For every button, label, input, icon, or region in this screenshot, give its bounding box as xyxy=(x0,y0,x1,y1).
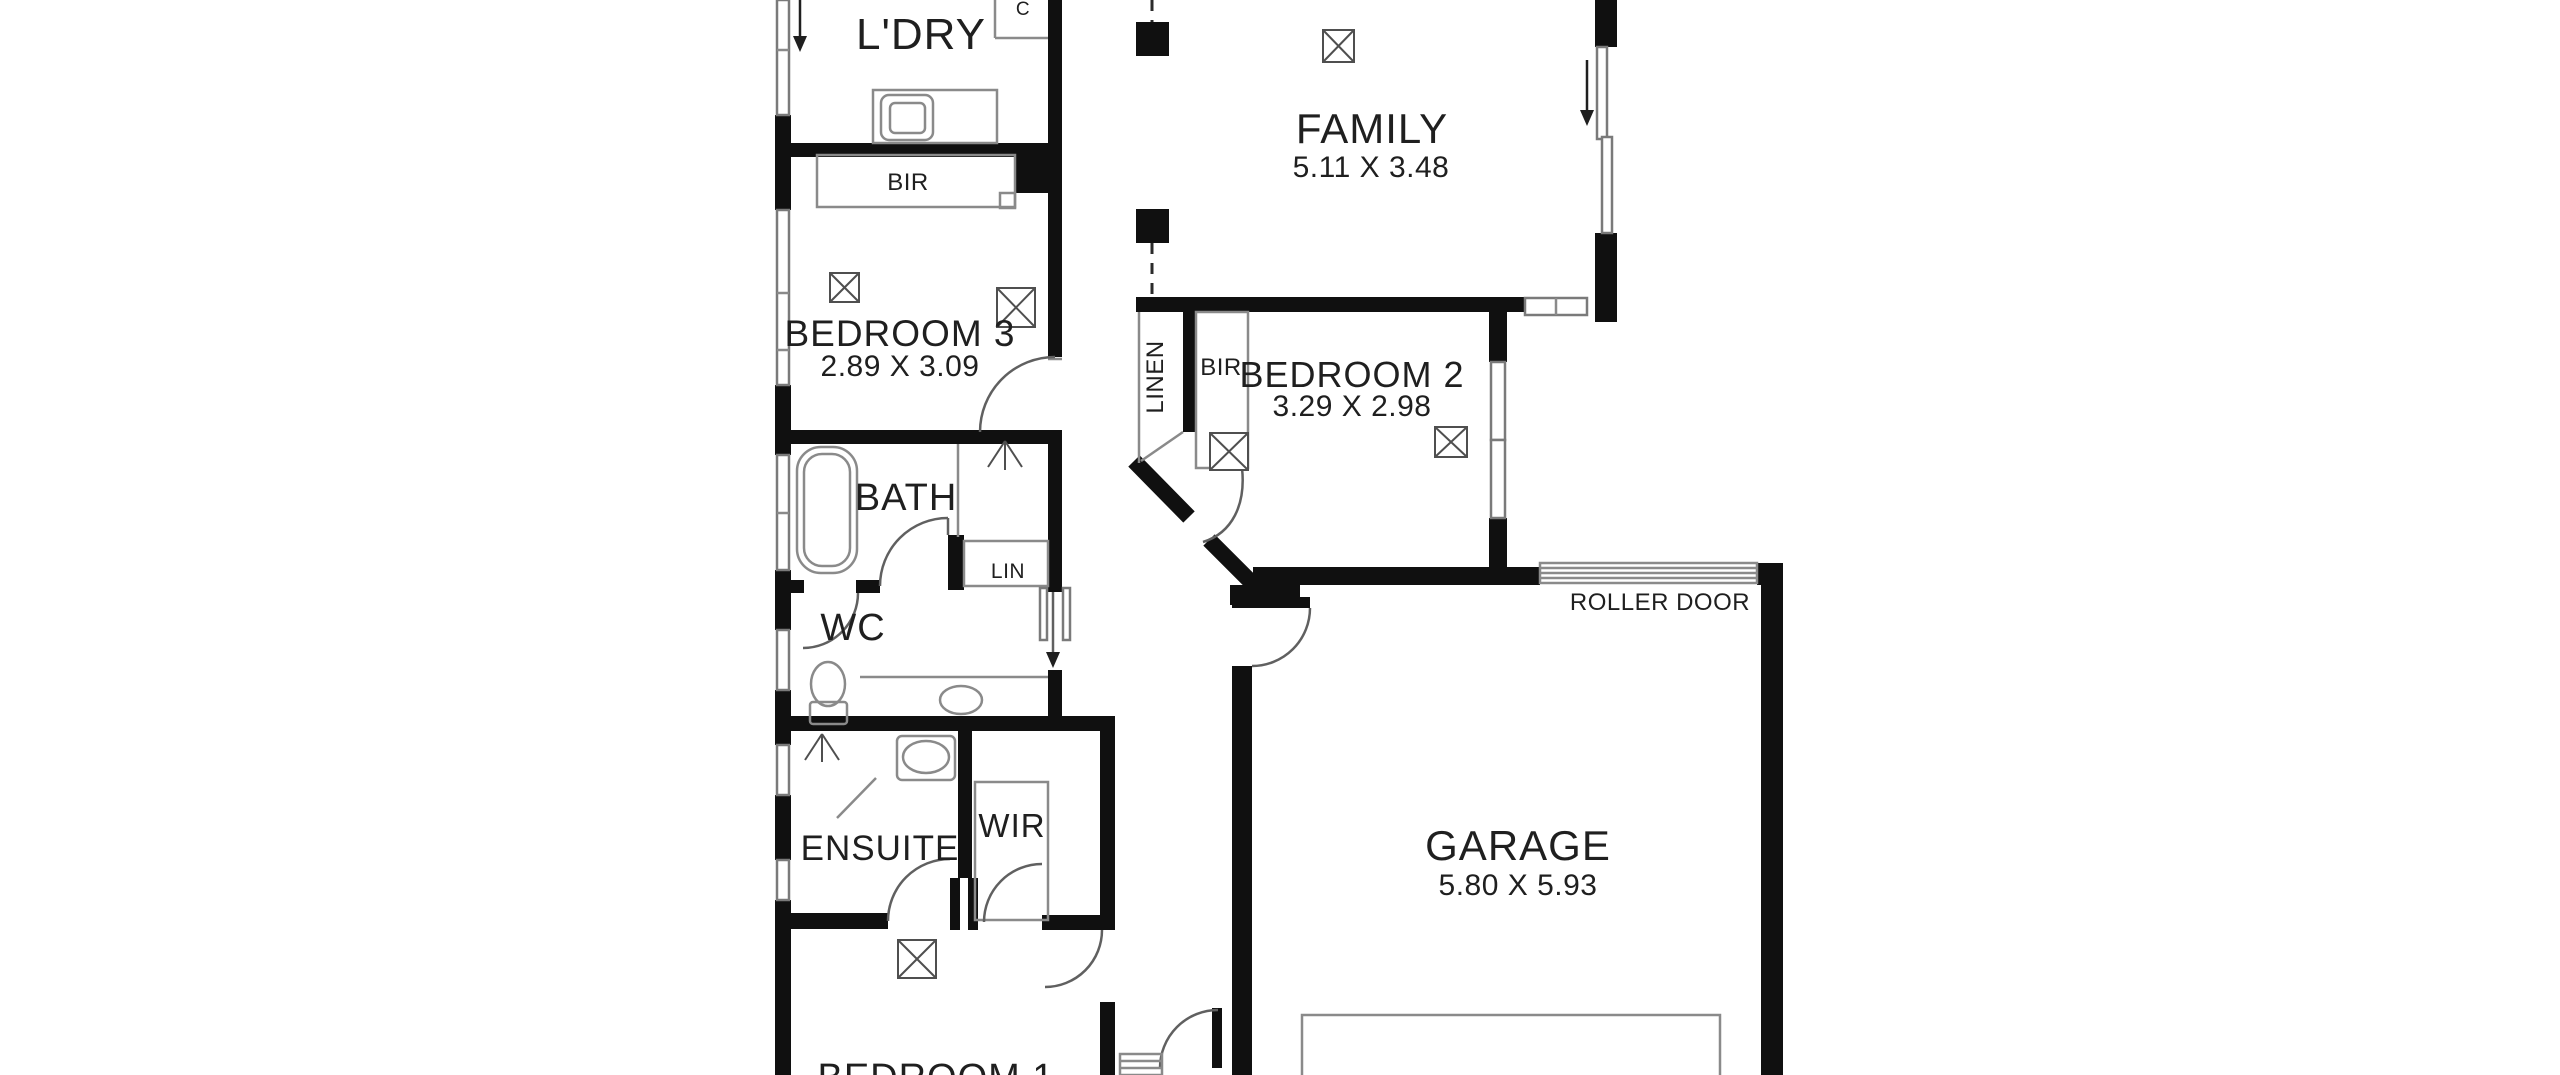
floor-plan-svg: L'DRY C BIR FAMILY 5.11 X 3.48 BEDROOM 3… xyxy=(0,0,2560,1075)
room-label-bedroom2: BEDROOM 2 xyxy=(1239,354,1464,395)
ensuite-basin-icon xyxy=(897,736,955,780)
window xyxy=(777,0,789,115)
entry-arrow-icon xyxy=(793,0,807,52)
window xyxy=(777,210,789,385)
shower-icon xyxy=(988,441,1022,470)
post xyxy=(1136,22,1169,56)
room-dims-garage: 5.80 X 5.93 xyxy=(1439,869,1598,902)
room-label-bath: BATH xyxy=(855,477,958,519)
roller-door xyxy=(1540,563,1757,583)
sliding-door-arrow-icon xyxy=(1046,652,1060,668)
wall-diagonal xyxy=(1209,540,1256,587)
cross-box-icon xyxy=(1323,30,1354,62)
wall-segment xyxy=(775,690,791,745)
closet-label-linen: LINEN xyxy=(1142,340,1169,413)
garage-door-arc xyxy=(1252,608,1310,666)
wall-segment xyxy=(1232,666,1252,1075)
wall-segment xyxy=(1595,0,1617,47)
window xyxy=(777,860,789,900)
cross-box-icon xyxy=(1210,433,1248,470)
entry-door-arc xyxy=(1160,1010,1218,1068)
wall-segment xyxy=(775,570,791,630)
garage-door-leaf xyxy=(1252,597,1310,608)
ensuite-door-arc xyxy=(888,859,950,921)
wall-segment xyxy=(1100,1002,1115,1075)
room-label-family: FAMILY xyxy=(1296,105,1448,152)
wall-segment xyxy=(775,385,791,455)
cross-box-icon xyxy=(830,273,859,302)
window xyxy=(777,745,789,795)
wall-segment xyxy=(1595,233,1617,322)
floor-plan-page: L'DRY C BIR FAMILY 5.11 X 3.48 BEDROOM 3… xyxy=(0,0,2560,1075)
shower-icon xyxy=(805,734,876,818)
bedroom2-door-arc xyxy=(1203,468,1243,542)
room-label-bedroom1: BEDROOM 1 xyxy=(817,1057,1054,1075)
room-label-wir: WIR xyxy=(978,807,1045,844)
toilet-icon xyxy=(810,662,847,724)
wall-segment xyxy=(950,878,960,930)
room-label-wc: WC xyxy=(820,607,885,649)
room-dims-family: 5.11 X 3.48 xyxy=(1293,151,1450,184)
entry-steps-icon xyxy=(1120,1054,1162,1075)
wall-segment xyxy=(788,913,888,929)
room-label-ensuite: ENSUITE xyxy=(801,829,960,868)
windows xyxy=(777,0,1612,900)
wall-segment xyxy=(856,580,880,593)
entry-door-leaf xyxy=(1212,1008,1222,1068)
linen-wall xyxy=(1141,432,1183,461)
bedroom3-door-arc xyxy=(980,357,1055,432)
room-label-laundry: L'DRY xyxy=(856,10,986,59)
wall-segment xyxy=(958,731,972,878)
vanity-basin-icon xyxy=(860,677,1048,714)
closet-label-bir-bed3: BIR xyxy=(887,169,929,196)
wir-door-arc xyxy=(984,864,1042,922)
wall-segment xyxy=(1253,567,1540,585)
wall-diagonal xyxy=(1134,461,1189,517)
wall-segment xyxy=(1183,312,1196,432)
closet-label-bir-bed2: BIR xyxy=(1200,354,1242,381)
room-label-bedroom3: BEDROOM 3 xyxy=(784,313,1015,354)
wall-segment xyxy=(1048,432,1062,592)
garage-floor-outline xyxy=(1302,1015,1720,1075)
wir-shelf-outline xyxy=(975,782,1048,920)
cross-box-icon xyxy=(1435,427,1467,457)
window xyxy=(1491,440,1505,518)
wall-segment xyxy=(968,878,978,930)
wall-segment xyxy=(1048,670,1062,722)
entry-arrow-icon xyxy=(1580,60,1594,126)
bath-door-arc xyxy=(880,518,948,586)
wall-segment xyxy=(1761,563,1783,1075)
post xyxy=(1136,209,1169,243)
window xyxy=(777,630,789,690)
wall-segment xyxy=(775,795,791,860)
room-label-garage: GARAGE xyxy=(1425,822,1611,869)
label-roller-door: ROLLER DOOR xyxy=(1570,589,1750,616)
bedroom1-door-arc xyxy=(1045,930,1102,987)
room-dims-bedroom3: 2.89 X 3.09 xyxy=(821,350,980,383)
sliding-door xyxy=(1040,588,1070,668)
wall-segment xyxy=(790,580,804,593)
wall-segment xyxy=(1048,0,1062,357)
closet-label-cupboard: C xyxy=(1016,0,1030,20)
wall-segment xyxy=(1100,722,1115,930)
room-dims-bedroom2: 3.29 X 2.98 xyxy=(1273,390,1432,423)
wall-segment xyxy=(775,115,791,210)
washing-machine-icon xyxy=(873,90,997,143)
wall-segment xyxy=(1136,297,1525,312)
window xyxy=(1597,47,1607,139)
wall-segment xyxy=(790,430,1062,444)
walls xyxy=(775,0,1783,1075)
wall-segment xyxy=(1489,307,1507,362)
window xyxy=(1602,137,1612,233)
cross-box-icon xyxy=(898,940,936,978)
closet-label-lin: LIN xyxy=(991,560,1025,583)
window xyxy=(1491,362,1505,440)
wall-segment xyxy=(948,535,964,590)
